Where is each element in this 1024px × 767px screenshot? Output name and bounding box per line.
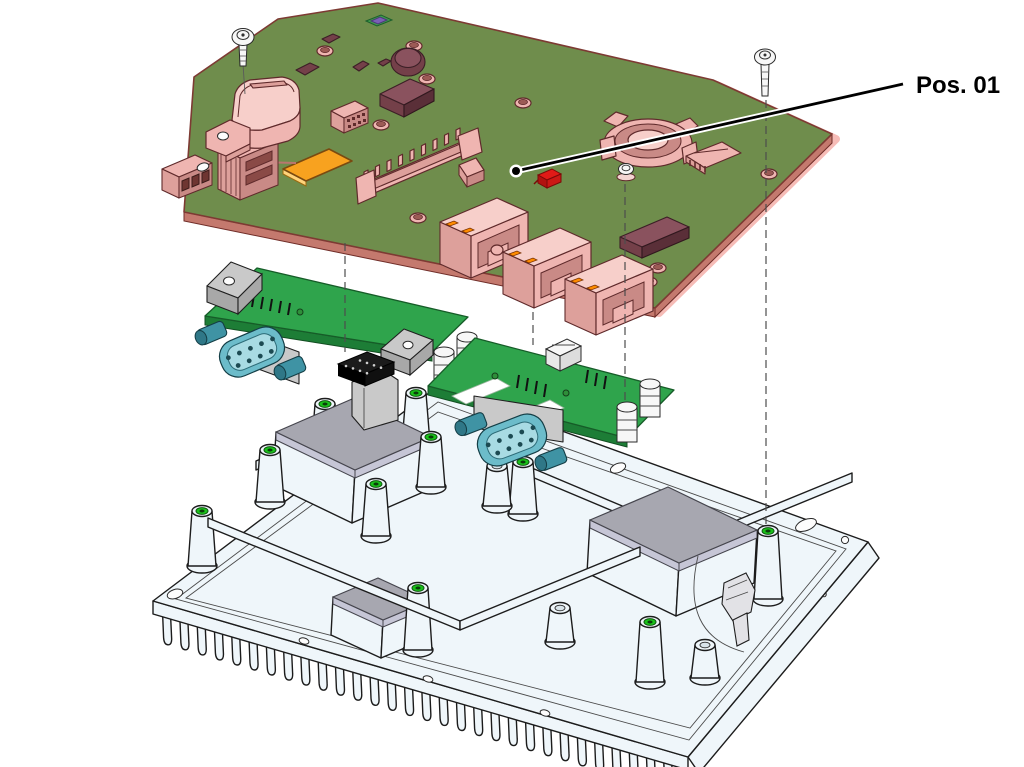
diagram-svg: Pos. 01 <box>0 0 1024 767</box>
standoff-spacer <box>640 379 660 417</box>
screw-hole-center <box>267 449 272 452</box>
standoff-screw-boss <box>403 583 433 658</box>
header-pin <box>387 160 391 172</box>
standoff-screw-boss <box>753 526 783 607</box>
boss-hole <box>700 642 710 648</box>
hex-standoff <box>491 245 503 255</box>
ring-hole <box>654 264 663 269</box>
capacitor <box>391 48 425 76</box>
mounting-ring <box>373 120 389 130</box>
socket-pin <box>380 366 383 369</box>
screw-hole-center <box>647 621 652 624</box>
led-green <box>563 390 569 396</box>
screw-hole-center <box>520 461 525 464</box>
header-pin <box>445 133 449 145</box>
mounting-hole <box>841 536 848 543</box>
standoff-screw-boss <box>416 432 446 495</box>
mounting-ring <box>317 46 333 56</box>
mounting-ring <box>515 98 531 108</box>
standoff-screw-boss <box>361 479 391 544</box>
standoff-boss <box>690 640 720 686</box>
header-pin <box>410 149 414 161</box>
mounting-screw-right <box>755 49 776 96</box>
standoff-body <box>509 462 537 514</box>
exploded-view-diagram: Pos. 01 <box>0 0 1024 767</box>
socket-pin <box>366 362 369 365</box>
screw-hole-center <box>765 530 770 533</box>
screw-hole-center <box>373 483 378 486</box>
standoff-boss <box>482 461 512 514</box>
standoff-screw-boss <box>255 445 285 510</box>
mounting-ring <box>419 74 435 84</box>
callout-dot <box>512 167 520 175</box>
header-pin <box>376 165 380 177</box>
standoff-screw-boss <box>508 457 538 522</box>
screw-hole-center <box>322 403 327 406</box>
socket-pin <box>352 367 355 370</box>
standoff-boss <box>545 603 575 650</box>
socket-pin <box>345 365 348 368</box>
ring-hole <box>414 214 423 219</box>
callout-label: Pos. 01 <box>916 72 1000 99</box>
standoff-body <box>362 484 390 536</box>
standoff-body <box>417 437 445 487</box>
led-green <box>297 309 303 315</box>
standoff-body <box>404 588 432 650</box>
ring-hole <box>423 75 432 80</box>
screw-hole-center <box>199 510 204 513</box>
screw-hole-center <box>415 587 420 590</box>
screw-hole-center <box>428 436 433 439</box>
mounting-screw-small <box>617 164 635 181</box>
mounting-ring <box>761 169 777 179</box>
header-pin <box>399 154 403 166</box>
header-pin <box>433 139 437 151</box>
socket-pin <box>373 364 376 367</box>
mounting-ring <box>410 213 426 223</box>
standoff-screw-boss <box>635 617 665 690</box>
ring-hole <box>519 99 528 104</box>
ring-hole <box>321 47 330 52</box>
standoff-body <box>636 622 664 682</box>
standoff-body <box>754 531 782 599</box>
standoff-screw-boss <box>187 506 217 574</box>
socket-pin <box>359 370 362 373</box>
ring-hole <box>410 42 419 47</box>
ring-hole <box>377 121 386 126</box>
socket-pin <box>359 359 362 362</box>
screw-hole-center <box>413 392 418 395</box>
socket-pin <box>366 372 369 375</box>
standoff-body <box>256 450 284 502</box>
led-green <box>492 373 498 379</box>
boss-hole <box>555 605 565 611</box>
standoff-spacer <box>617 402 637 442</box>
header-pin <box>422 144 426 156</box>
